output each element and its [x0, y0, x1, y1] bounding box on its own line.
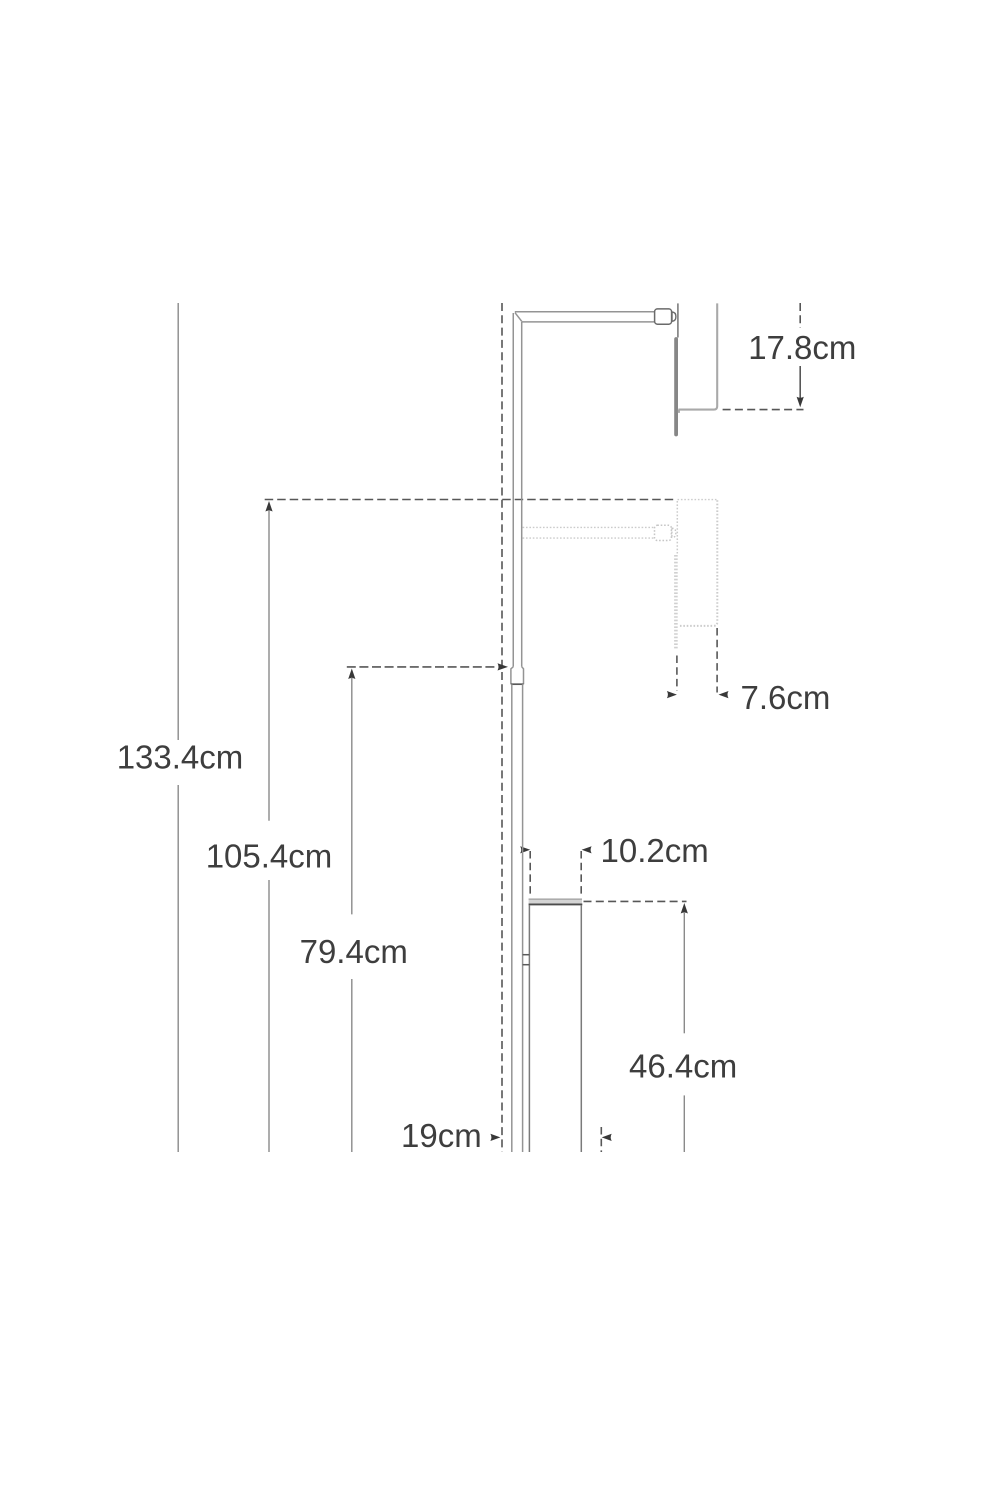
svg-text:105.4cm: 105.4cm	[206, 837, 333, 874]
svg-text:17.8cm: 17.8cm	[748, 329, 856, 366]
svg-text:19cm: 19cm	[401, 1117, 482, 1154]
svg-text:46.4cm: 46.4cm	[629, 1048, 737, 1085]
svg-text:133.4cm: 133.4cm	[117, 739, 244, 776]
svg-text:79.4cm: 79.4cm	[300, 933, 408, 970]
svg-text:7.6cm: 7.6cm	[741, 679, 831, 716]
svg-text:10.2cm: 10.2cm	[601, 832, 709, 869]
